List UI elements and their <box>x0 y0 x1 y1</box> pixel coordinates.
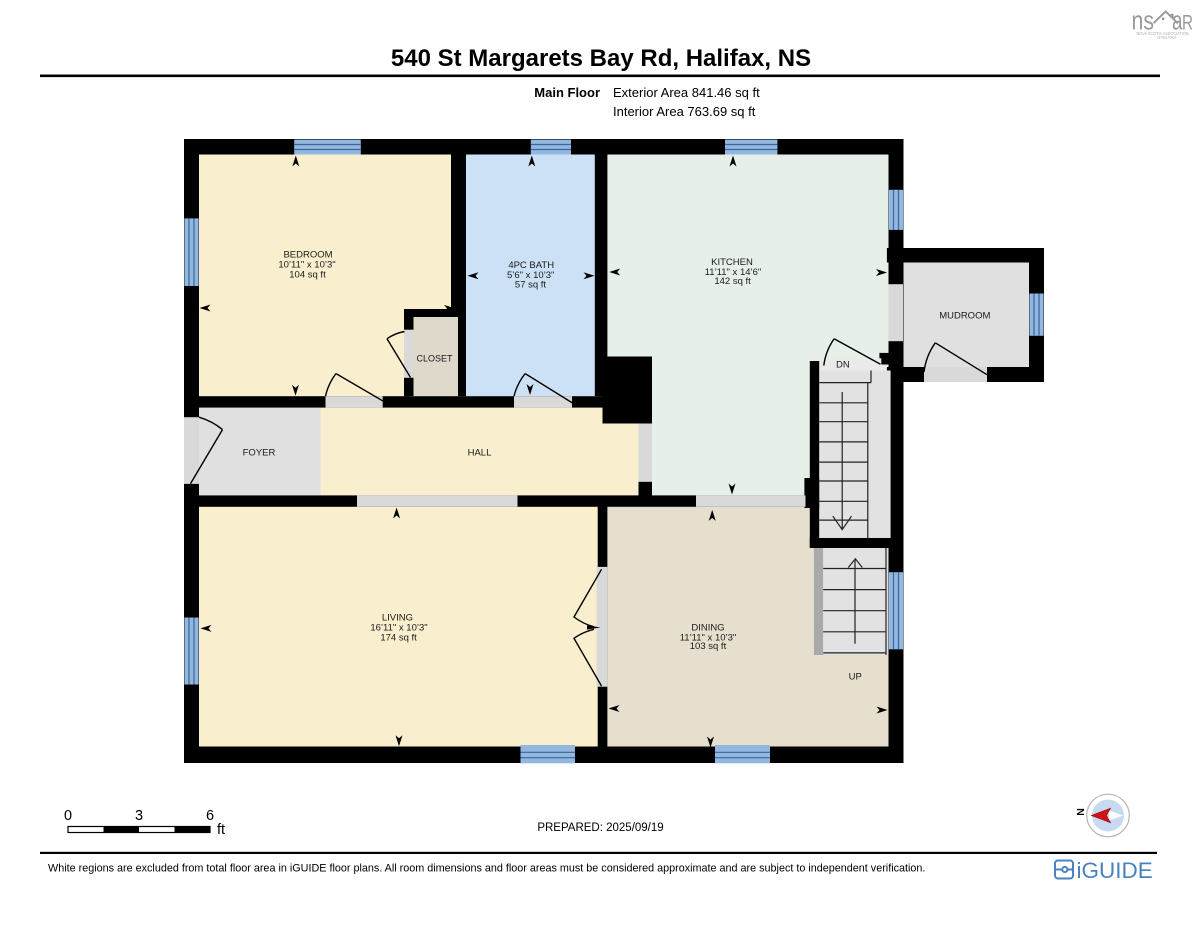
svg-text:142 sq ft: 142 sq ft <box>714 276 751 287</box>
svg-text:MUDROOM: MUDROOM <box>939 311 990 322</box>
svg-text:PREPARED: 2025/09/19: PREPARED: 2025/09/19 <box>537 822 663 834</box>
svg-text:OF REALTORS®: OF REALTORS® <box>1158 35 1177 40</box>
svg-text:174 sq ft: 174 sq ft <box>380 633 417 644</box>
svg-text:iGUIDE: iGUIDE <box>1077 858 1153 883</box>
svg-text:6: 6 <box>206 808 214 824</box>
svg-text:3: 3 <box>135 808 143 824</box>
svg-text:N: N <box>1075 808 1087 816</box>
svg-text:Exterior Area 841.46 sq ft: Exterior Area 841.46 sq ft <box>613 85 760 100</box>
svg-text:57 sq ft: 57 sq ft <box>515 280 547 291</box>
svg-text:ft: ft <box>217 822 225 838</box>
svg-text:103 sq ft: 103 sq ft <box>690 641 727 652</box>
svg-text:HALL: HALL <box>468 448 492 459</box>
svg-text:0: 0 <box>64 808 72 824</box>
svg-text:DN: DN <box>836 360 850 371</box>
svg-text:Main Floor: Main Floor <box>534 85 600 100</box>
svg-text:104 sq ft: 104 sq ft <box>289 269 326 280</box>
svg-text:540 St Margarets Bay Rd, Halif: 540 St Margarets Bay Rd, Halifax, NS <box>391 45 811 72</box>
svg-text:FOYER: FOYER <box>243 448 276 459</box>
svg-text:Interior Area 763.69 sq ft: Interior Area 763.69 sq ft <box>613 104 756 119</box>
svg-text:UP: UP <box>849 671 862 682</box>
svg-text:CLOSET: CLOSET <box>416 353 453 363</box>
svg-text:White regions are excluded fro: White regions are excluded from total fl… <box>48 863 925 875</box>
